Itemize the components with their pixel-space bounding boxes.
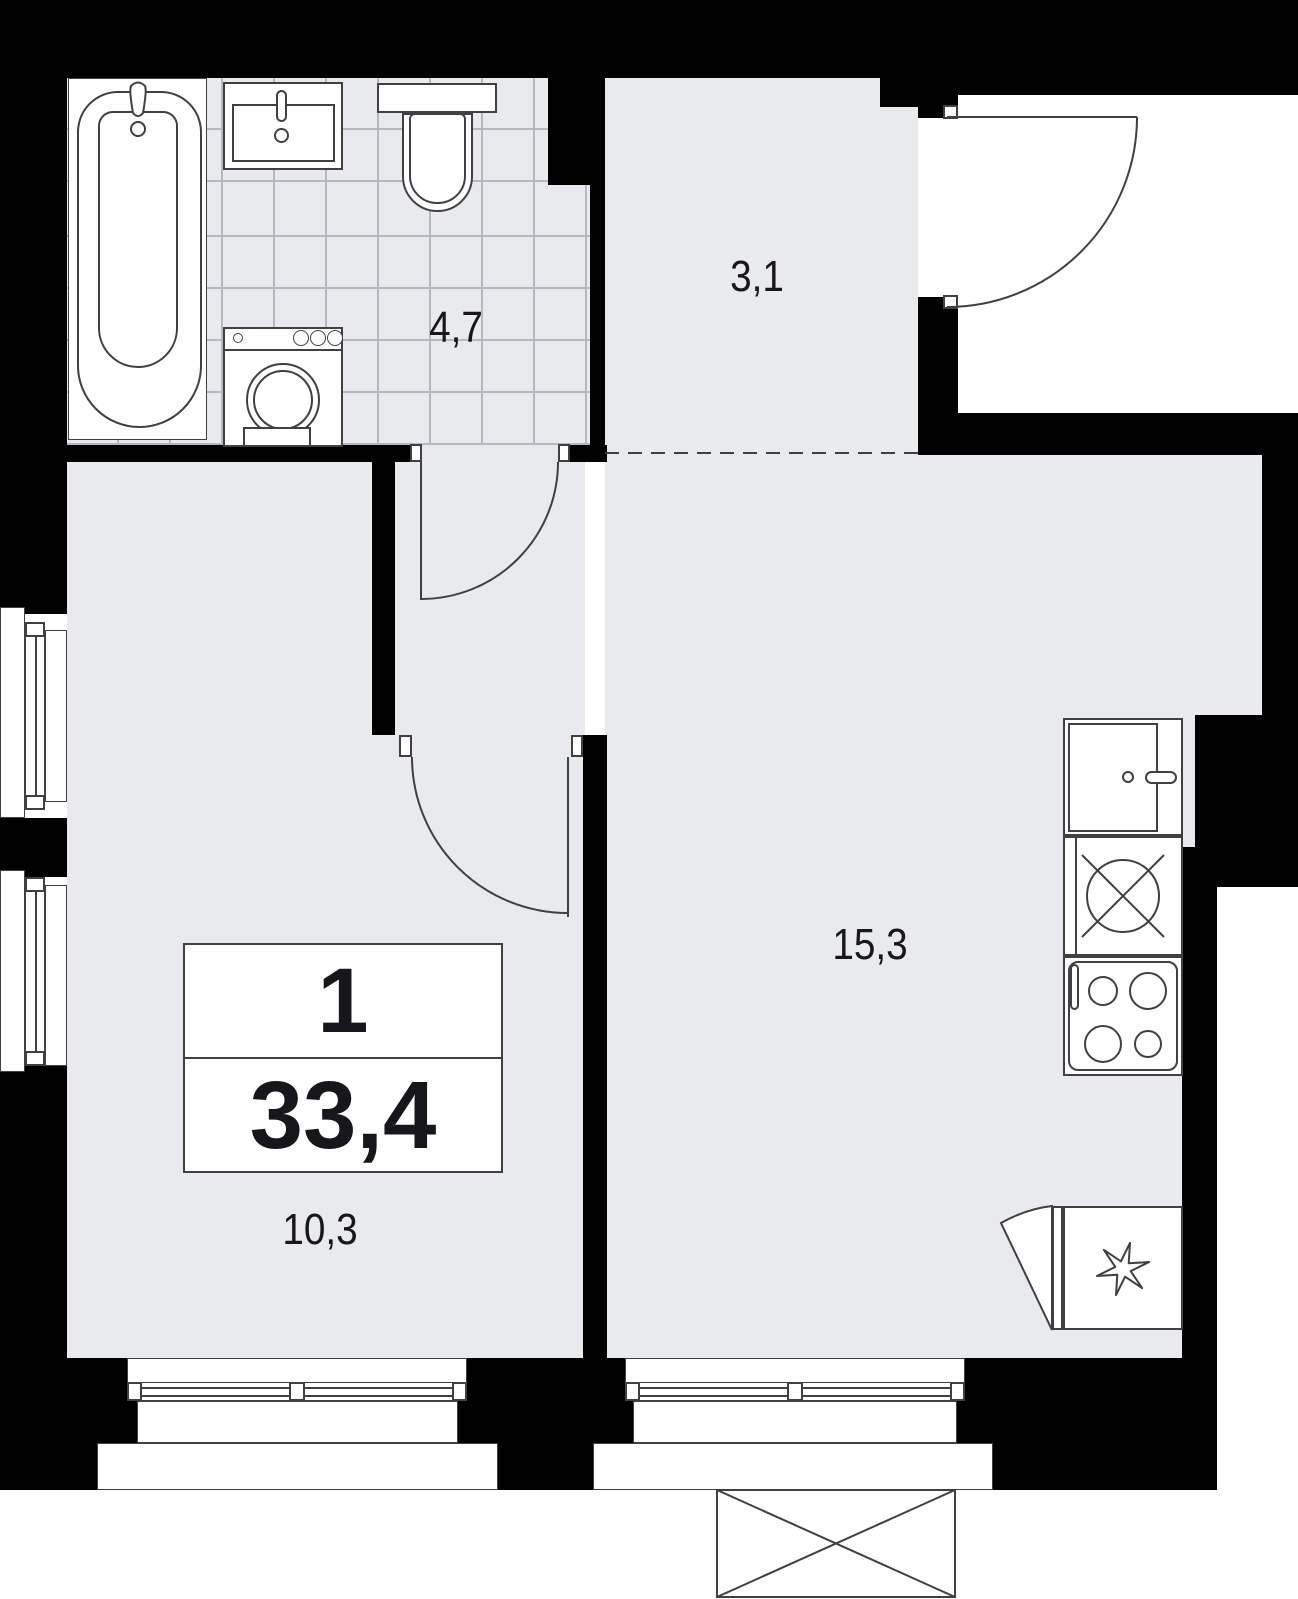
entrance-door-jamb-top <box>943 105 958 119</box>
hallway-area-label: 3,1 <box>730 252 784 302</box>
living-window-mullion <box>787 1382 803 1401</box>
wall-bathroom-bottom-right <box>570 445 607 462</box>
room-count-value: 1 <box>317 949 368 1054</box>
kitchen-hob-unit <box>1063 836 1183 956</box>
stove-burner <box>1088 976 1118 1006</box>
kitchen-sink-drain <box>1122 771 1134 783</box>
wall-bathroom-bottom-left <box>55 445 410 462</box>
fridge <box>1063 1206 1183 1330</box>
bedroom-window-recess <box>137 1401 458 1443</box>
kitchen-stove-handle <box>1070 964 1079 1010</box>
stove-burner <box>1129 972 1167 1010</box>
wall-left-between-windows <box>0 818 67 877</box>
living-window-inner-band <box>625 1358 965 1383</box>
living-window-cap-left <box>625 1382 640 1401</box>
kitchen-living-area-label: 15,3 <box>832 920 907 970</box>
living-window-sill <box>593 1443 993 1490</box>
stove-burner <box>1084 1025 1122 1063</box>
entrance-exterior-area <box>958 95 1298 413</box>
kitchen-living-floor-upper <box>605 455 1262 715</box>
bedroom-window-cap-left <box>127 1382 142 1401</box>
washing-machine-button <box>327 330 343 346</box>
wall-partition-lower <box>583 735 607 1358</box>
bedroom-door-jamb-left <box>399 735 412 757</box>
washing-machine-knob <box>233 333 243 343</box>
left-window-a-recess <box>45 630 67 802</box>
left-window-a-sill <box>0 607 25 818</box>
wall-left-upper <box>0 0 67 614</box>
wall-partition-stub <box>372 462 395 735</box>
entrance-door-jamb-bottom <box>943 295 958 309</box>
wall-band-top-right <box>918 413 1298 455</box>
total-area-cell: 33,4 <box>185 1059 501 1173</box>
wall-right-upper <box>1262 455 1298 715</box>
living-window-recess <box>633 1401 957 1443</box>
bathroom-sink-drain <box>274 128 289 143</box>
window-glass-line <box>35 878 37 1065</box>
bathroom-door-jamb-right <box>558 444 570 462</box>
bedroom-door-jamb-right <box>571 735 583 757</box>
apartment-info-box: 1 33,4 <box>183 943 503 1173</box>
balcony-crossed-box-icon <box>717 1490 955 1597</box>
kitchen-niche-strip <box>1182 715 1195 847</box>
bedroom-window-cap-right <box>452 1382 467 1401</box>
room-count-cell: 1 <box>185 945 501 1059</box>
floor-plan: 1 33,4 3,1 4,7 15,3 10,3 <box>0 0 1298 1599</box>
bathroom-door-jamb-left <box>410 444 422 462</box>
washing-machine-panel-line <box>223 349 343 351</box>
toilet-bowl-inner <box>409 113 466 204</box>
wall-bathroom-right-upper <box>548 78 605 185</box>
bedroom-window-sill <box>97 1443 498 1490</box>
bedroom-area-label: 10,3 <box>282 1205 357 1255</box>
washing-machine-pedestal <box>243 427 311 447</box>
entrance-door-opening <box>918 118 958 297</box>
washing-machine-button <box>310 330 326 346</box>
stove-burner <box>1134 1030 1162 1058</box>
washing-machine-drum-inner <box>253 370 313 430</box>
toilet-tank <box>377 83 497 113</box>
bathroom-area-label: 4,7 <box>429 303 483 353</box>
wall-bathroom-right-lower <box>590 185 605 445</box>
kitchen-sink-faucet-icon <box>1145 771 1177 784</box>
bedroom-window-mullion <box>289 1382 305 1401</box>
left-window-b-cap-top <box>25 877 45 892</box>
bedroom-window-inner-band <box>127 1358 467 1383</box>
washing-machine-button <box>293 330 309 346</box>
wall-top-right <box>918 0 1298 95</box>
left-window-a-cap-bottom <box>25 795 45 810</box>
total-area-value: 33,4 <box>250 1061 437 1171</box>
living-window-cap-right <box>950 1382 965 1401</box>
left-window-b-recess <box>45 885 67 1066</box>
wall-top-left <box>0 0 958 78</box>
bedroom-doorway-floor <box>399 735 583 757</box>
bathroom-doorway-floor <box>410 445 570 462</box>
window-glass-line <box>35 623 37 809</box>
bathroom-sink-faucet-icon <box>276 90 287 122</box>
left-window-a-cap-top <box>25 622 45 637</box>
bathtub-inner <box>98 111 178 368</box>
left-window-b-frame <box>25 877 45 1066</box>
left-window-b-sill <box>0 870 25 1072</box>
left-window-b-cap-bottom <box>25 1051 45 1066</box>
wall-right-lower <box>1182 847 1217 1360</box>
kitchen-hob-divider <box>1075 838 1077 954</box>
fridge-door-edge <box>1052 1206 1063 1330</box>
left-window-a-frame <box>25 622 45 810</box>
